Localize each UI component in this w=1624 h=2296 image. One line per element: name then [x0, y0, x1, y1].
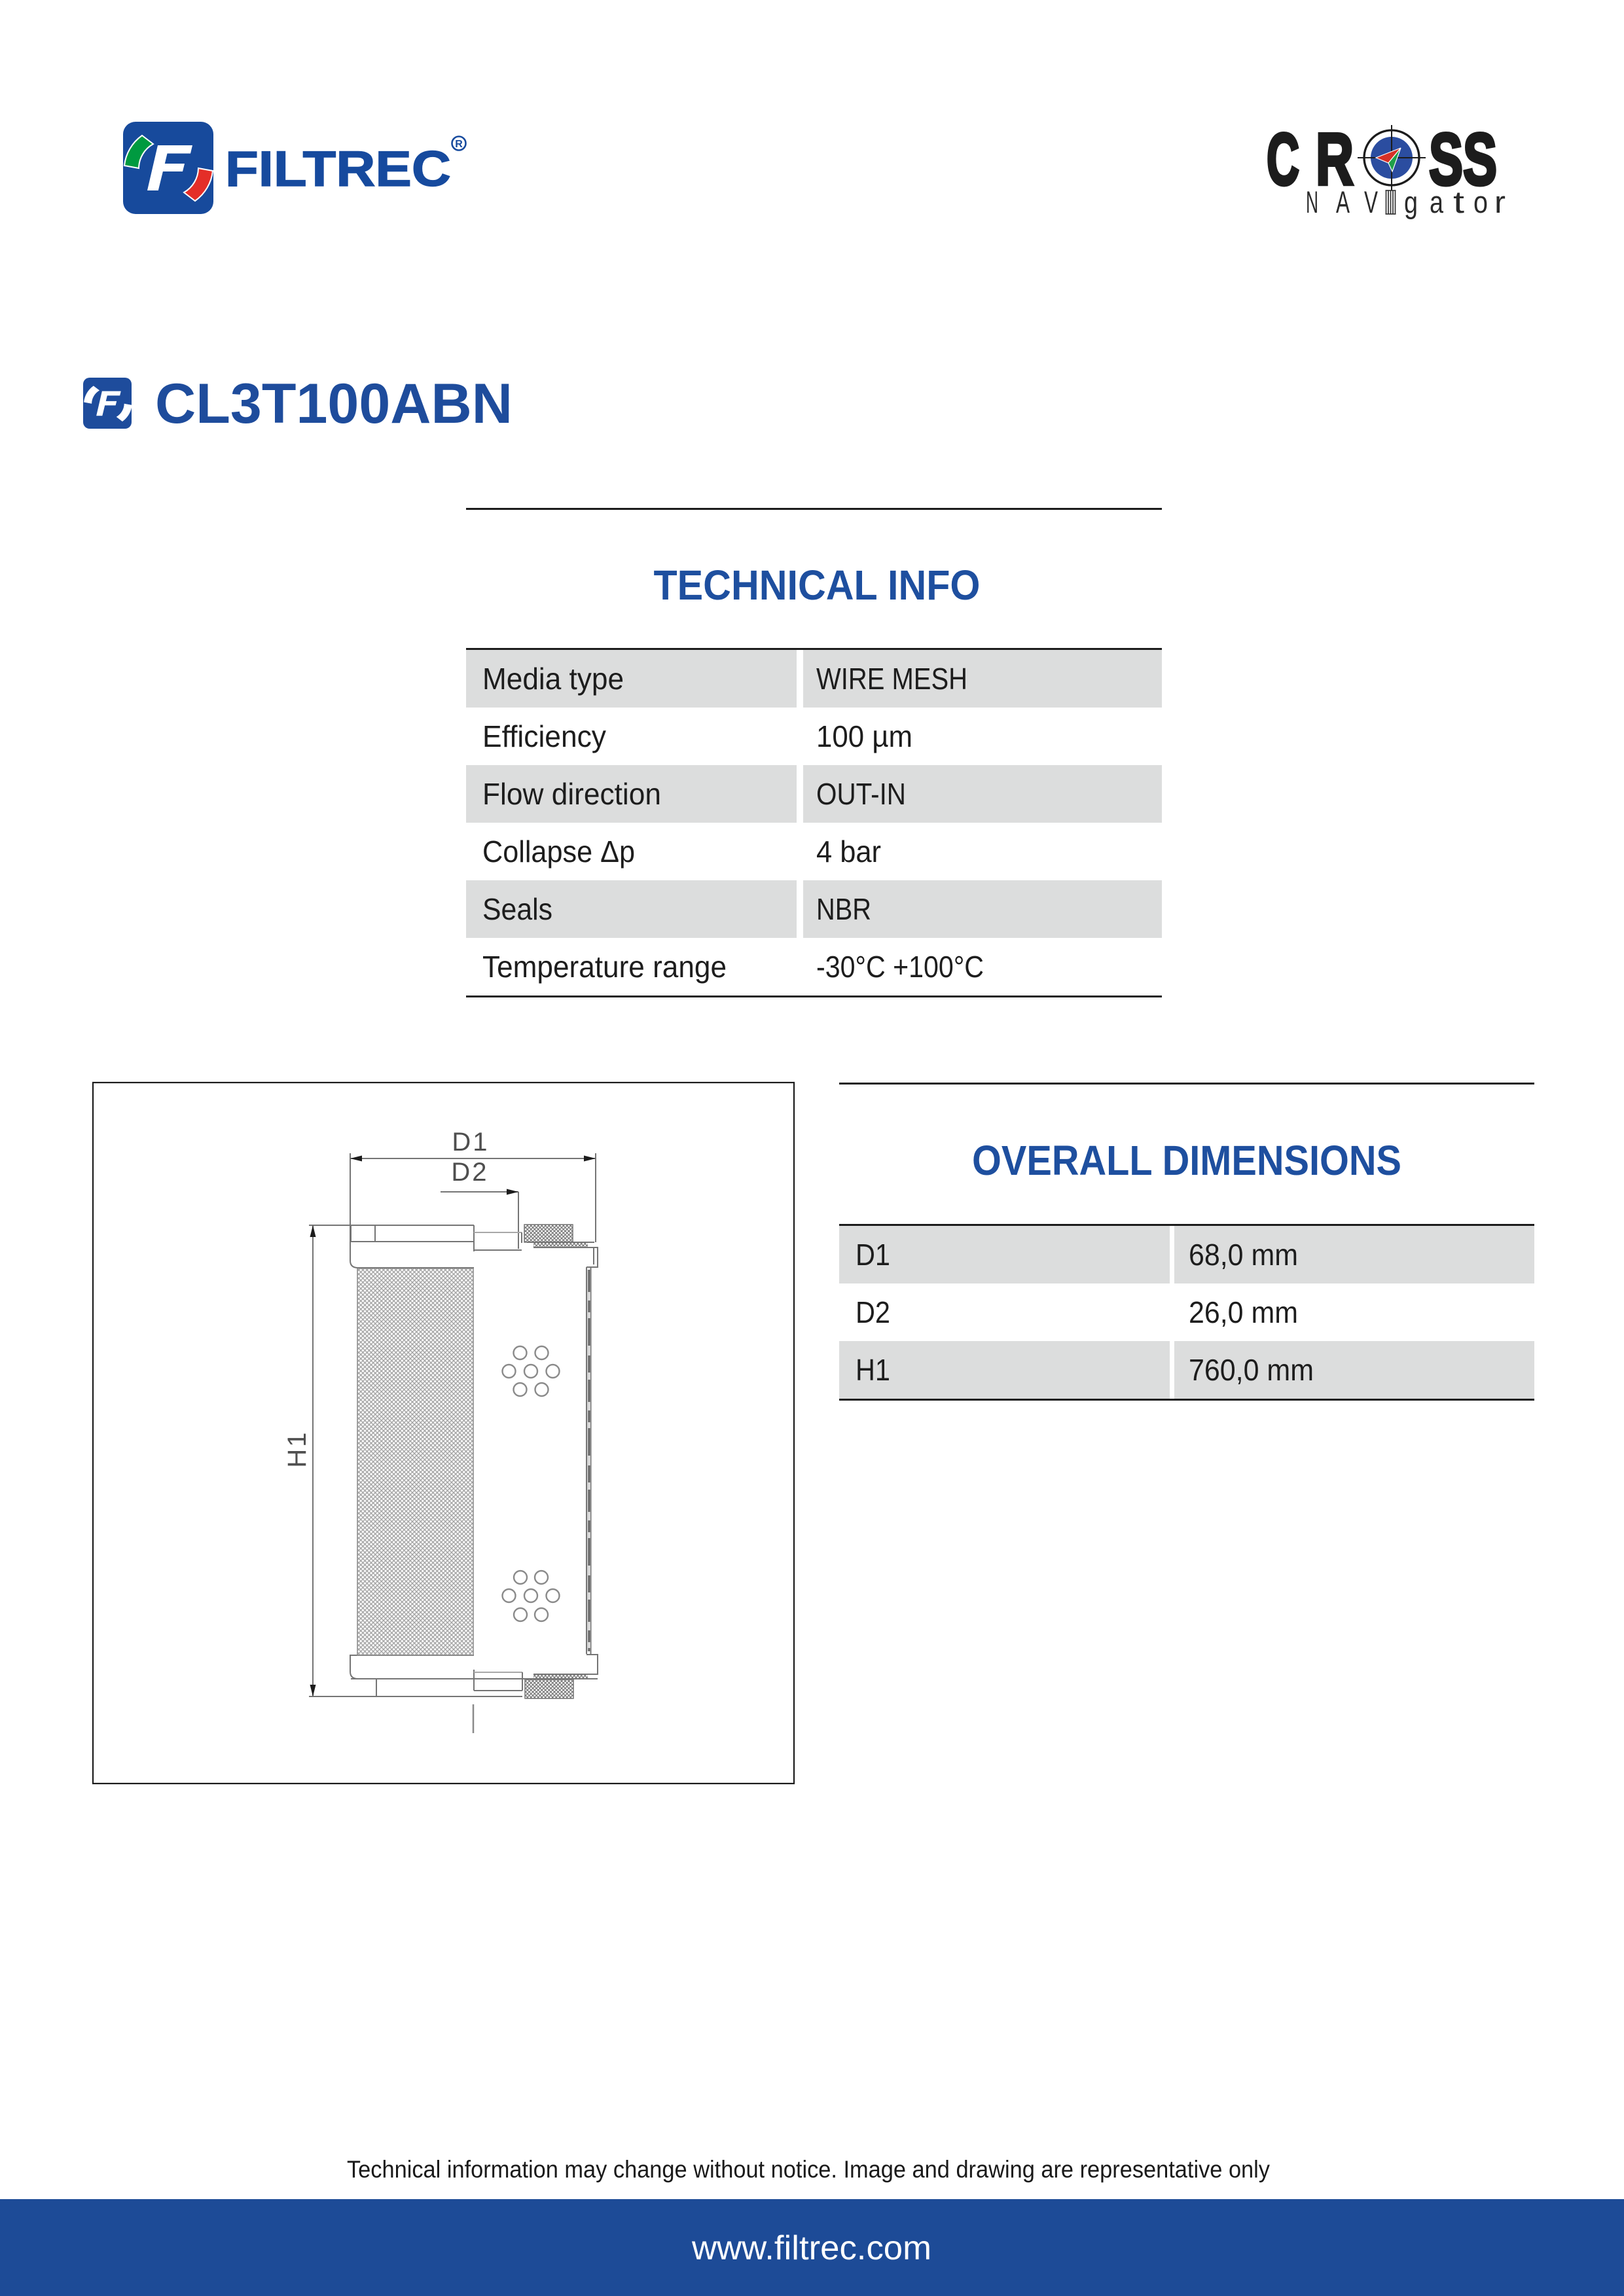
svg-text:t: t	[1453, 185, 1464, 219]
svg-text:H1: H1	[283, 1430, 312, 1467]
svg-text:OVERALL DIMENSIONS: OVERALL DIMENSIONS	[972, 1137, 1401, 1184]
svg-text:TECHNICAL INFO: TECHNICAL INFO	[654, 562, 981, 609]
svg-text:26,0 mm: 26,0 mm	[1189, 1295, 1298, 1329]
svg-text:Collapse Δp: Collapse Δp	[482, 834, 635, 869]
svg-text:Technical information may chan: Technical information may change without…	[347, 2156, 1270, 2183]
svg-text:760,0 mm: 760,0 mm	[1189, 1353, 1314, 1387]
svg-text:N: N	[1306, 185, 1318, 219]
svg-text:R: R	[455, 139, 463, 150]
svg-text:WIRE MESH: WIRE MESH	[816, 662, 967, 696]
svg-text:Media type: Media type	[482, 662, 624, 696]
svg-text:D2: D2	[451, 1158, 488, 1187]
svg-text:Temperature range: Temperature range	[482, 950, 727, 984]
svg-text:r: r	[1494, 185, 1506, 219]
svg-text:Seals: Seals	[482, 892, 552, 926]
svg-text:D1: D1	[856, 1238, 890, 1272]
svg-text:Flow direction: Flow direction	[482, 777, 661, 811]
svg-text:C: C	[1267, 118, 1299, 200]
svg-text:D2: D2	[856, 1295, 890, 1329]
svg-text:www.filtrec.com: www.filtrec.com	[691, 2229, 931, 2267]
svg-text:Efficiency: Efficiency	[482, 719, 606, 753]
svg-text:D1: D1	[452, 1128, 489, 1157]
svg-text:g: g	[1404, 185, 1418, 219]
svg-text:68,0 mm: 68,0 mm	[1189, 1238, 1298, 1272]
svg-text:NBR: NBR	[816, 892, 871, 926]
svg-text:FILTREC: FILTREC	[225, 141, 451, 197]
svg-text:4 bar: 4 bar	[816, 834, 881, 869]
svg-text:a: a	[1430, 185, 1444, 219]
svg-text:-30°C +100°C: -30°C +100°C	[816, 950, 984, 984]
svg-text:o: o	[1473, 185, 1488, 219]
svg-text:OUT-IN: OUT-IN	[816, 777, 906, 811]
svg-text:100 µm: 100 µm	[816, 719, 912, 753]
svg-text:H1: H1	[856, 1353, 890, 1387]
svg-text:V: V	[1364, 185, 1378, 219]
svg-text:CL3T100ABN: CL3T100ABN	[155, 372, 513, 435]
svg-text:A: A	[1336, 185, 1350, 219]
